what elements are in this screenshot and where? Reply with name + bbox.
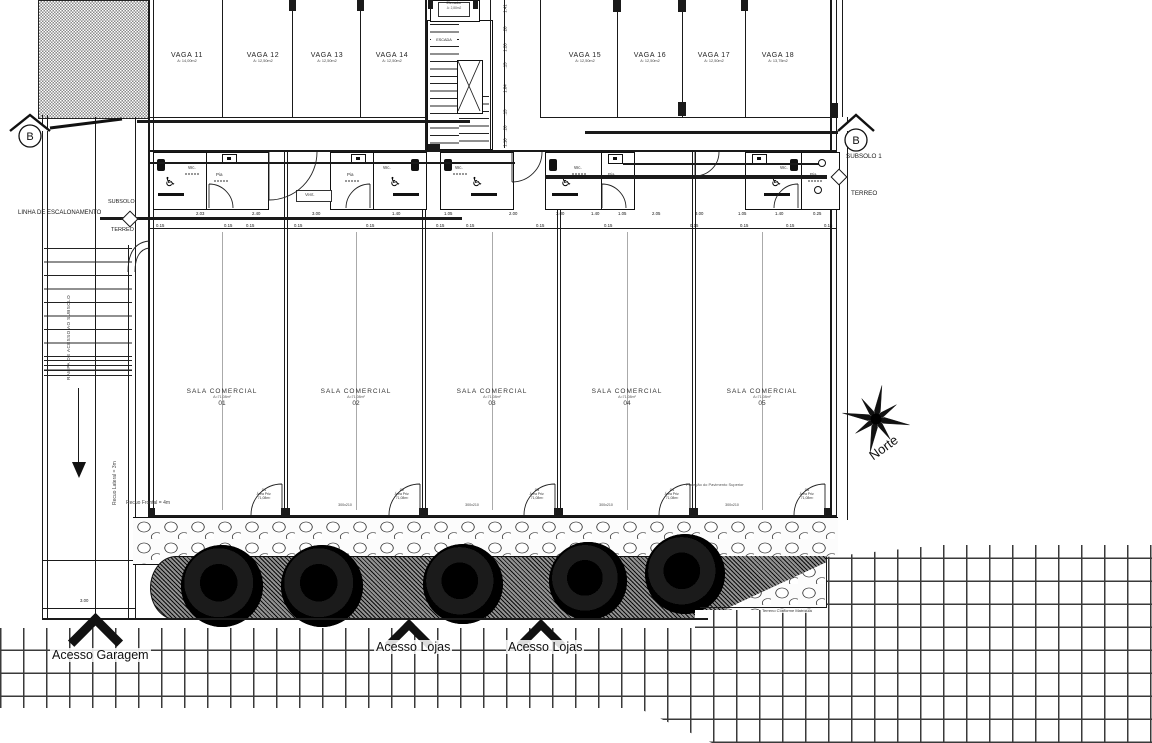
level-label-subsolo: SUBSOLO (108, 199, 135, 205)
projection-line (492, 232, 493, 510)
room-divider (692, 150, 694, 515)
door-tag: 01Área Priv.71,08m² (248, 487, 280, 500)
door-tag: 05Área Priv.71,08m² (791, 487, 823, 500)
level-label-subsolo1: SUBSOLO 1 (846, 154, 882, 161)
door-tag: 02Área Priv.71,08m² (386, 487, 418, 500)
wc-label: Wc. (383, 165, 391, 170)
room-label: SALA COMERCIALA=71,08m²04 (567, 388, 687, 407)
wall-right-outer (836, 0, 837, 520)
projection-line (627, 232, 628, 510)
window-size-label: 300x210 (330, 503, 360, 507)
dim-row-values: 2.032.403.001.401.052.003.001.401.052.05… (0, 211, 1152, 219)
tree-icon (423, 544, 503, 624)
room-label: SALA COMERCIALA=71,08m²01 (162, 388, 282, 407)
dim-line (847, 117, 848, 520)
ramp-label: RAMPA DE ACESSO AO SUBSOLO (66, 252, 71, 380)
wall-right (830, 0, 832, 520)
room-label: SALA COMERCIALA=71,08m²05 (702, 388, 822, 407)
ramp-arrow-head-icon (72, 462, 86, 478)
site-boundary (826, 557, 827, 608)
ramp-arrow-shaft (78, 388, 79, 464)
grab-bar-icon (764, 193, 790, 196)
room-divider (695, 150, 696, 515)
wall-left-inner (153, 0, 154, 515)
wc-label: Wc. (455, 165, 463, 170)
grab-bar-icon (393, 193, 419, 196)
boundary-line (842, 0, 843, 117)
bathroom-module: ♿ Wc. (440, 152, 514, 210)
window-size-label: 300x210 (591, 503, 621, 507)
wheelchair-icon: ♿ (163, 174, 177, 189)
projection-line (356, 232, 357, 510)
vent-duct: Vent. (296, 190, 332, 202)
window-size-label: 300x210 (457, 503, 487, 507)
toilet-icon (411, 159, 419, 171)
pia-label: Pia (347, 172, 354, 177)
toilet-icon (444, 159, 452, 171)
projection-line (762, 232, 763, 510)
pia-area-note (808, 180, 823, 182)
wheelchair-icon: ♿ (388, 174, 402, 189)
wc-area-note (185, 173, 200, 175)
toilet-icon (790, 159, 798, 171)
bathroom-module: Pia ♿ Wc. (330, 152, 427, 210)
wc-partition (601, 153, 602, 209)
level-label-terreo: TERREO (851, 191, 877, 198)
room-divider (284, 150, 286, 515)
wc-area-note (453, 173, 468, 175)
north-label: Norte (867, 433, 901, 463)
sink-drain-icon (356, 157, 360, 160)
sink-drain-icon (613, 157, 617, 160)
pia-label: Pia (216, 172, 223, 177)
tree-icon (549, 542, 627, 620)
bathroom-module: ♿ Wc. Pia (153, 152, 269, 210)
sink-icon (608, 154, 623, 164)
floor-plan-canvas: RAMPA DE ACESSO AO SUBSOLO 3.00 VAGA 11A… (0, 0, 1152, 743)
room-label: SALA COMERCIALA=71,08m²02 (296, 388, 416, 407)
toilet-icon (157, 159, 165, 171)
terrain-note: Terreno Conforme Matrícula (762, 609, 812, 613)
bathroom-module: ♿ Wc. Pia (545, 152, 635, 210)
projection-line (222, 232, 223, 510)
toilet-icon (549, 159, 557, 171)
wc-label: Wc. (780, 165, 788, 170)
door-tag: 04Área Priv.71,08m² (656, 487, 688, 500)
wc-label: Wc. (188, 165, 196, 170)
dim-line (148, 228, 836, 229)
grab-bar-icon (552, 193, 578, 196)
tree-icon (181, 545, 263, 627)
level-marker-icon (818, 159, 826, 167)
level-line (623, 163, 820, 165)
access-shops-label: Acesso Lojas (374, 640, 452, 654)
dim-label: 3.00 (80, 599, 88, 604)
tree-icon (645, 534, 725, 614)
grab-bar-icon (471, 193, 497, 196)
site-boundary (42, 618, 708, 620)
setback-frontal-label: Recuo Frontal = 4m (126, 501, 170, 507)
wheelchair-icon: ♿ (470, 174, 484, 189)
stair-wall (490, 0, 491, 150)
ramp-treads-dense (44, 360, 132, 380)
ramp-bottom-line (42, 608, 135, 609)
grab-bar-icon (158, 193, 184, 196)
level-marker-icon (814, 186, 822, 194)
vent-label: Vent. (305, 193, 315, 198)
level-line (150, 162, 515, 164)
window-size-label: 300x210 (717, 503, 747, 507)
projection-note: Projeção do Pavimento Superior (686, 483, 744, 487)
access-shops-label: Acesso Lojas (506, 640, 584, 654)
room-label: SALA COMERCIALA=71,08m²03 (432, 388, 552, 407)
sink-drain-icon (757, 157, 761, 160)
wc-partition (801, 153, 802, 209)
wall-left (148, 0, 150, 520)
level-line-heavy (545, 175, 827, 179)
pia-area-note (345, 180, 360, 182)
ramp-bottom-line (42, 560, 135, 561)
dim-row-small: 0.150.150.150.150.150.150.150.150.150.15… (0, 223, 1152, 231)
access-garage-label: Acesso Garagem (50, 648, 151, 662)
door-tag: 03Área Priv.71,08m² (521, 487, 553, 500)
wc-label: Wc. (574, 165, 582, 170)
ramp-curve (135, 248, 149, 272)
setback-lateral-label: Recuo Lateral = 3m (113, 415, 119, 505)
stair-wall (425, 0, 427, 150)
room-divider (287, 150, 288, 515)
tree-icon (281, 545, 363, 627)
sink-drain-icon (227, 157, 231, 160)
section-cut-line (137, 120, 470, 123)
section-cut-line (585, 131, 838, 134)
pia-area-note (214, 180, 229, 182)
